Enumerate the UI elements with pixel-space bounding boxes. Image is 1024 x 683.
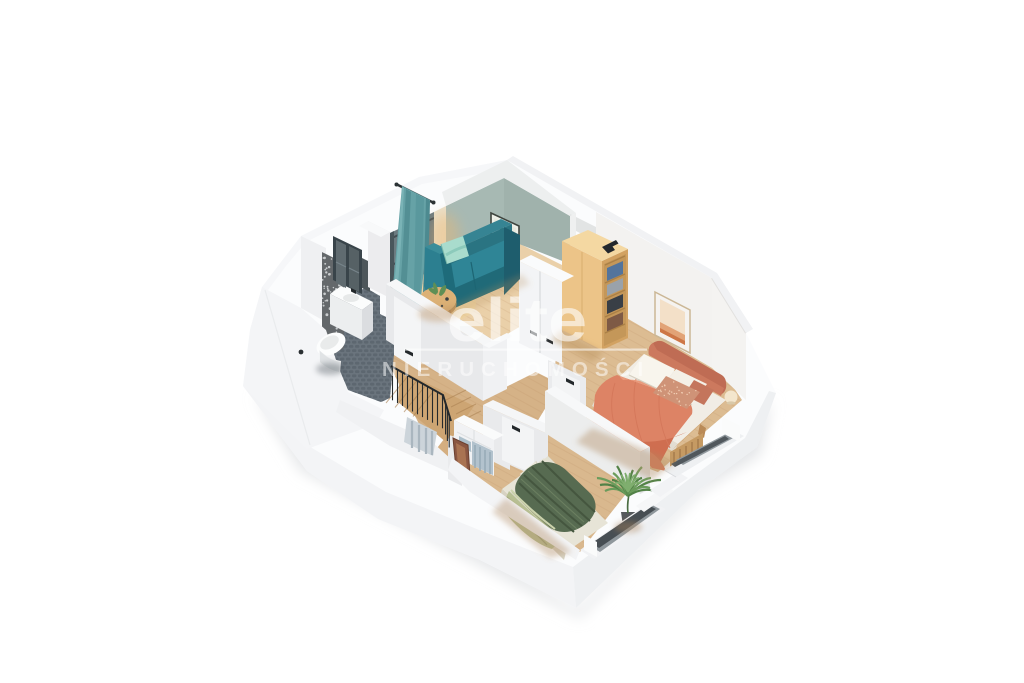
svg-text:elite: elite — [447, 286, 587, 354]
svg-text:NIERUCHOMOŚCI: NIERUCHOMOŚCI — [382, 357, 650, 381]
